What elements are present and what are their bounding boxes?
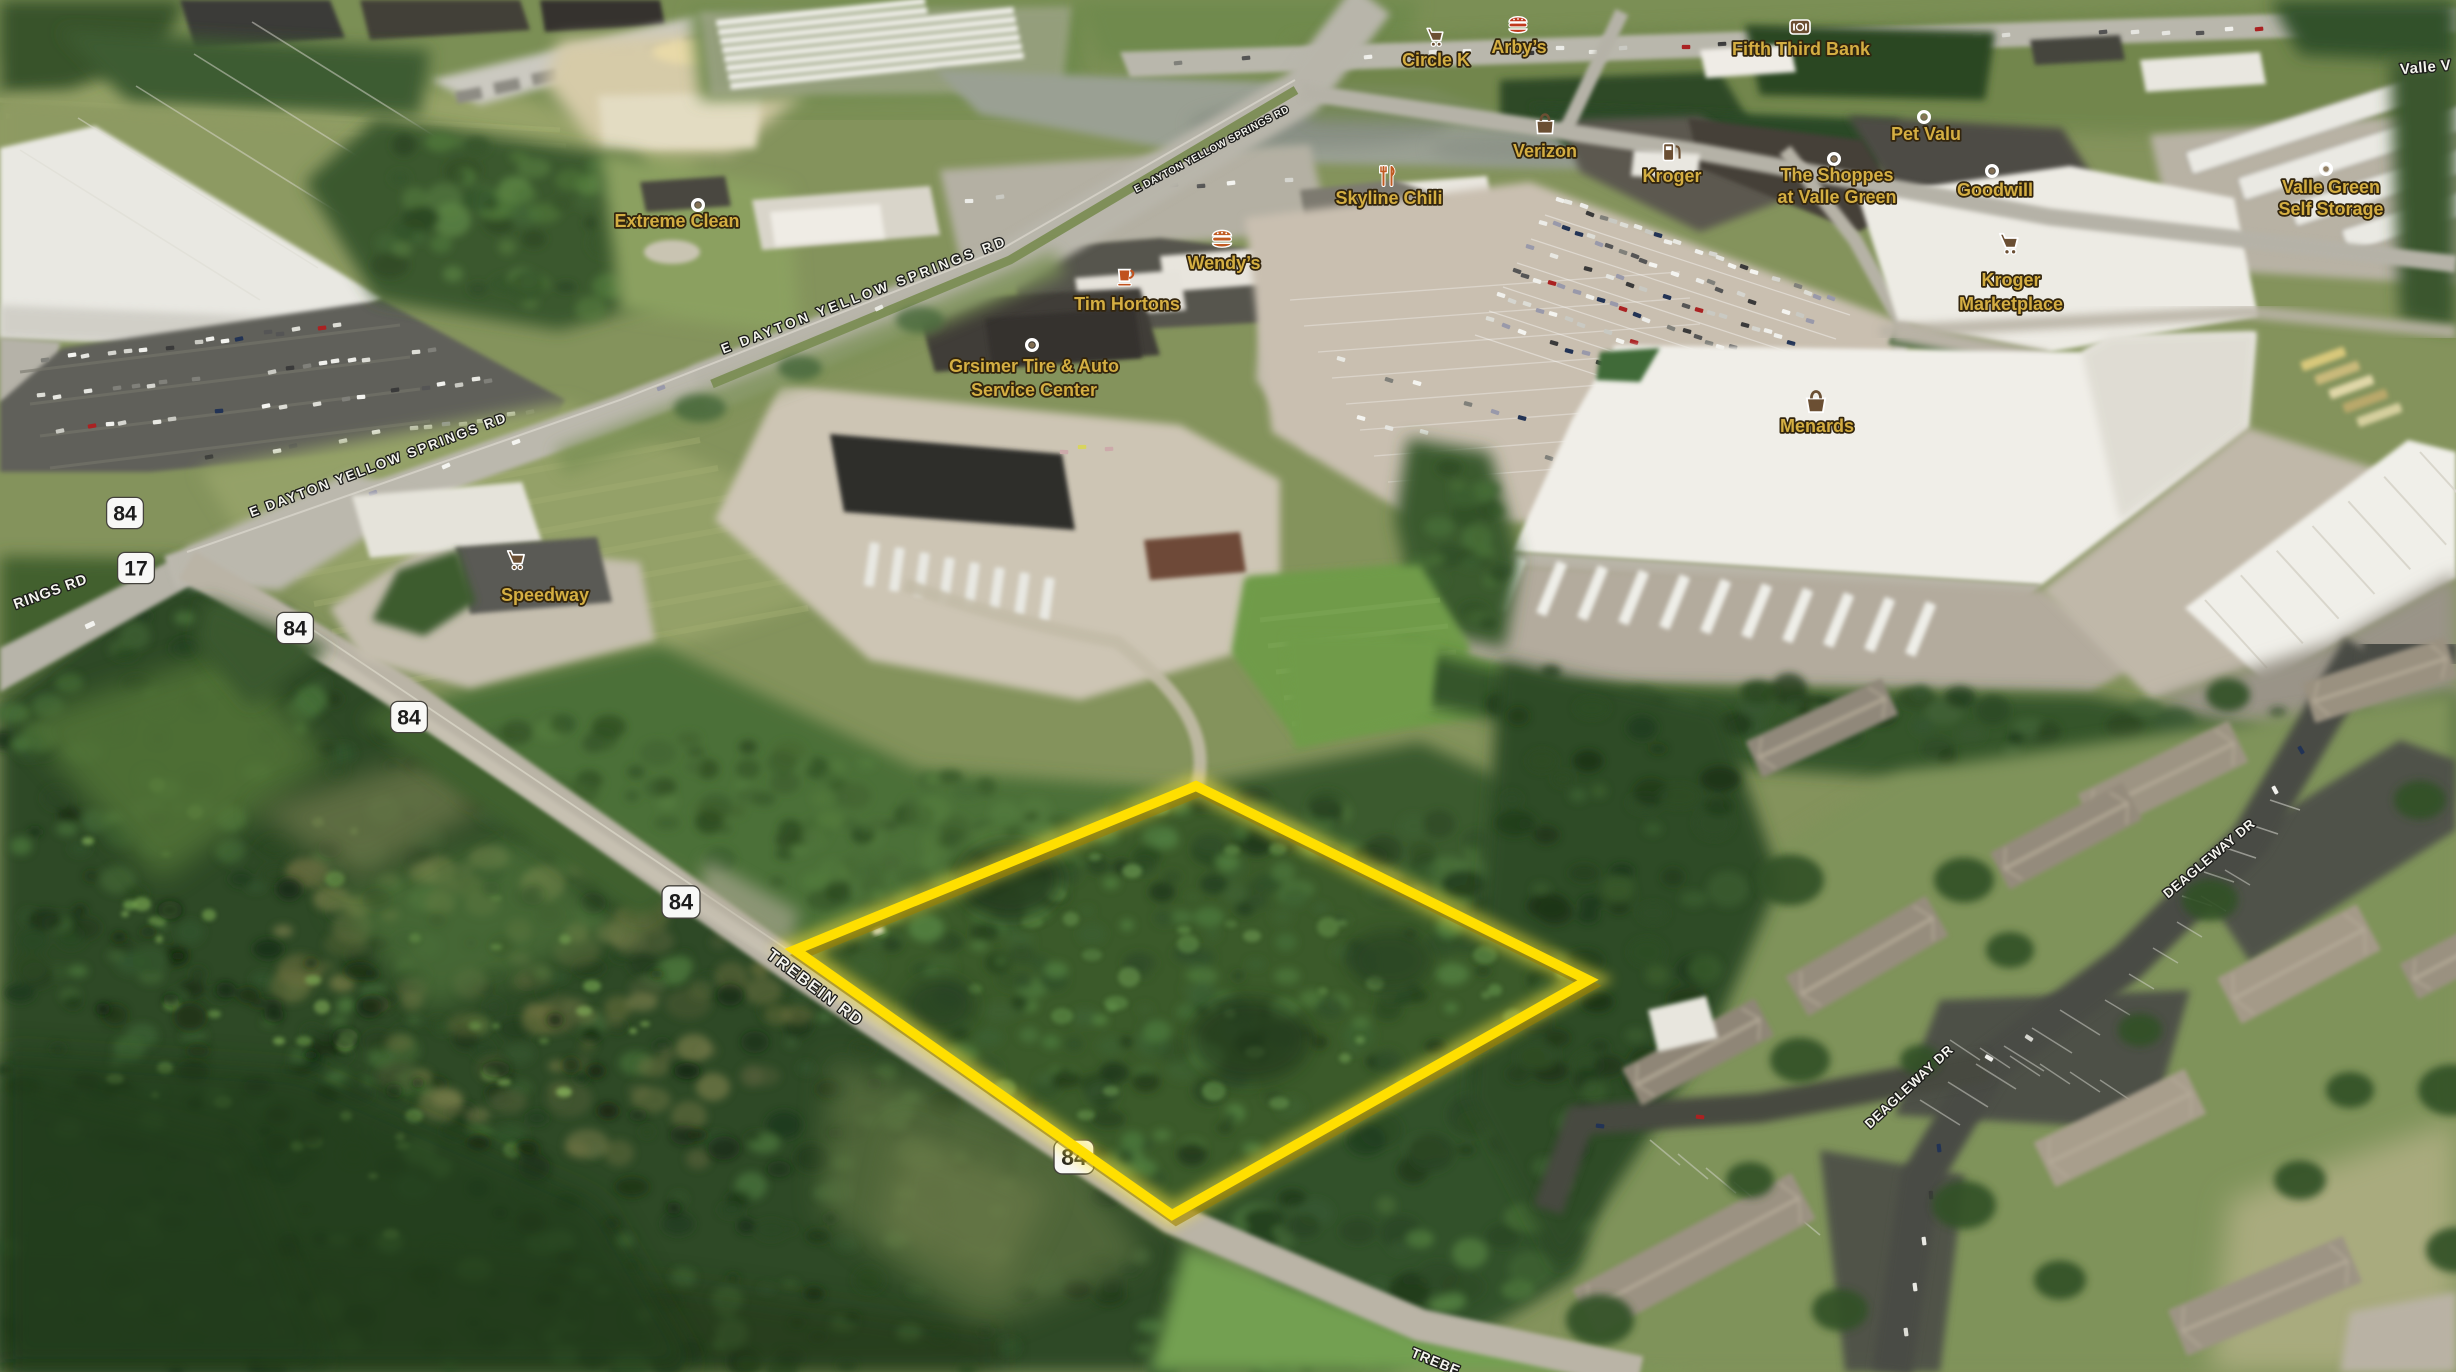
svg-text:Wendy’s: Wendy’s	[1187, 253, 1260, 273]
svg-text:Arby’s: Arby’s	[1491, 37, 1546, 57]
svg-text:Self Storage: Self Storage	[2278, 199, 2383, 219]
svg-text:at Valle Green: at Valle Green	[1777, 187, 1896, 207]
svg-text:Kroger: Kroger	[1981, 270, 2040, 290]
svg-text:17: 17	[124, 557, 148, 580]
svg-text:84: 84	[397, 706, 421, 729]
svg-text:Skyline Chili: Skyline Chili	[1335, 188, 1442, 208]
svg-text:Valle Green: Valle Green	[2282, 177, 2380, 197]
svg-text:Goodwill: Goodwill	[1957, 180, 2033, 200]
svg-text:84: 84	[113, 502, 137, 525]
svg-text:Verizon: Verizon	[1513, 141, 1577, 161]
svg-text:Kroger: Kroger	[1642, 166, 1701, 186]
svg-text:Grsimer Tire & Auto: Grsimer Tire & Auto	[949, 356, 1119, 376]
svg-text:Menards: Menards	[1780, 416, 1854, 436]
svg-text:Speedway: Speedway	[501, 585, 589, 605]
svg-text:84: 84	[669, 890, 694, 915]
svg-text:Pet Valu: Pet Valu	[1891, 124, 1961, 144]
svg-text:Service Center: Service Center	[971, 380, 1097, 400]
svg-text:Marketplace: Marketplace	[1959, 294, 2063, 314]
svg-text:84: 84	[283, 617, 307, 640]
svg-text:Fifth Third Bank: Fifth Third Bank	[1732, 39, 1871, 59]
svg-text:The Shoppes: The Shoppes	[1780, 165, 1893, 185]
svg-text:Extreme Clean: Extreme Clean	[614, 211, 739, 231]
svg-text:Tim Hortons: Tim Hortons	[1074, 294, 1180, 314]
svg-text:Circle K: Circle K	[1402, 50, 1470, 70]
